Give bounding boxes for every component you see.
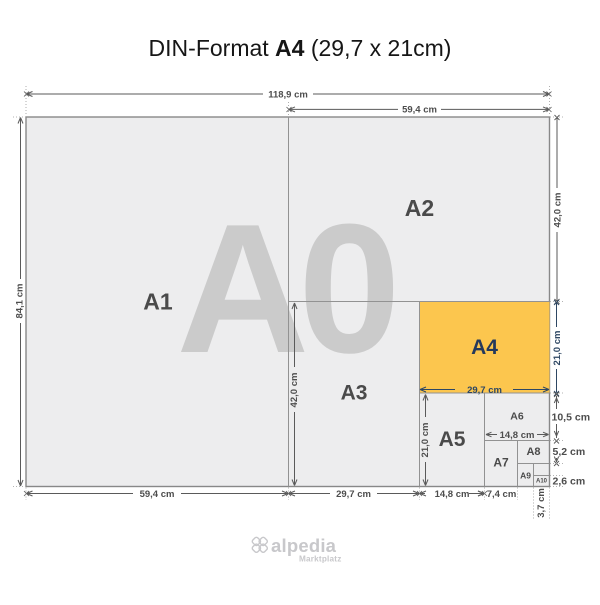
svg-text:A1: A1 bbox=[143, 289, 173, 315]
svg-text:21,0 cm: 21,0 cm bbox=[420, 423, 431, 458]
svg-text:10,5 cm: 10,5 cm bbox=[552, 412, 591, 424]
svg-text:A3: A3 bbox=[341, 382, 368, 405]
svg-text:29,7 cm: 29,7 cm bbox=[467, 385, 502, 396]
svg-text:42,0 cm: 42,0 cm bbox=[289, 373, 300, 408]
svg-text:59,4 cm: 59,4 cm bbox=[402, 105, 437, 116]
svg-text:A7: A7 bbox=[493, 456, 509, 470]
svg-text:29,7 cm: 29,7 cm bbox=[336, 489, 371, 500]
svg-text:A10: A10 bbox=[536, 479, 548, 485]
svg-text:A2: A2 bbox=[405, 195, 434, 221]
svg-text:A5: A5 bbox=[439, 428, 466, 451]
svg-text:14,8 cm: 14,8 cm bbox=[500, 430, 535, 441]
svg-text:A4: A4 bbox=[471, 336, 498, 359]
svg-text:7,4 cm: 7,4 cm bbox=[487, 489, 517, 500]
svg-text:2,6 cm: 2,6 cm bbox=[553, 476, 586, 488]
svg-text:14,8 cm: 14,8 cm bbox=[435, 489, 470, 500]
svg-text:Marktplatz: Marktplatz bbox=[299, 555, 342, 564]
svg-text:A6: A6 bbox=[510, 411, 524, 423]
svg-text:118,9 cm: 118,9 cm bbox=[268, 90, 308, 101]
svg-text:A9: A9 bbox=[520, 471, 531, 481]
svg-text:5,2 cm: 5,2 cm bbox=[553, 446, 586, 458]
svg-text:3,7 cm: 3,7 cm bbox=[536, 488, 547, 518]
svg-text:84,1 cm: 84,1 cm bbox=[15, 284, 26, 319]
svg-text:59,4 cm: 59,4 cm bbox=[140, 489, 175, 500]
svg-text:DIN-Format A4 (29,7 x 21cm): DIN-Format A4 (29,7 x 21cm) bbox=[149, 35, 452, 61]
svg-text:A0: A0 bbox=[176, 185, 393, 391]
svg-text:alpedia: alpedia bbox=[271, 535, 337, 556]
svg-text:42,0 cm: 42,0 cm bbox=[553, 193, 564, 228]
svg-text:21,0 cm: 21,0 cm bbox=[552, 331, 563, 366]
svg-text:A8: A8 bbox=[526, 446, 540, 458]
